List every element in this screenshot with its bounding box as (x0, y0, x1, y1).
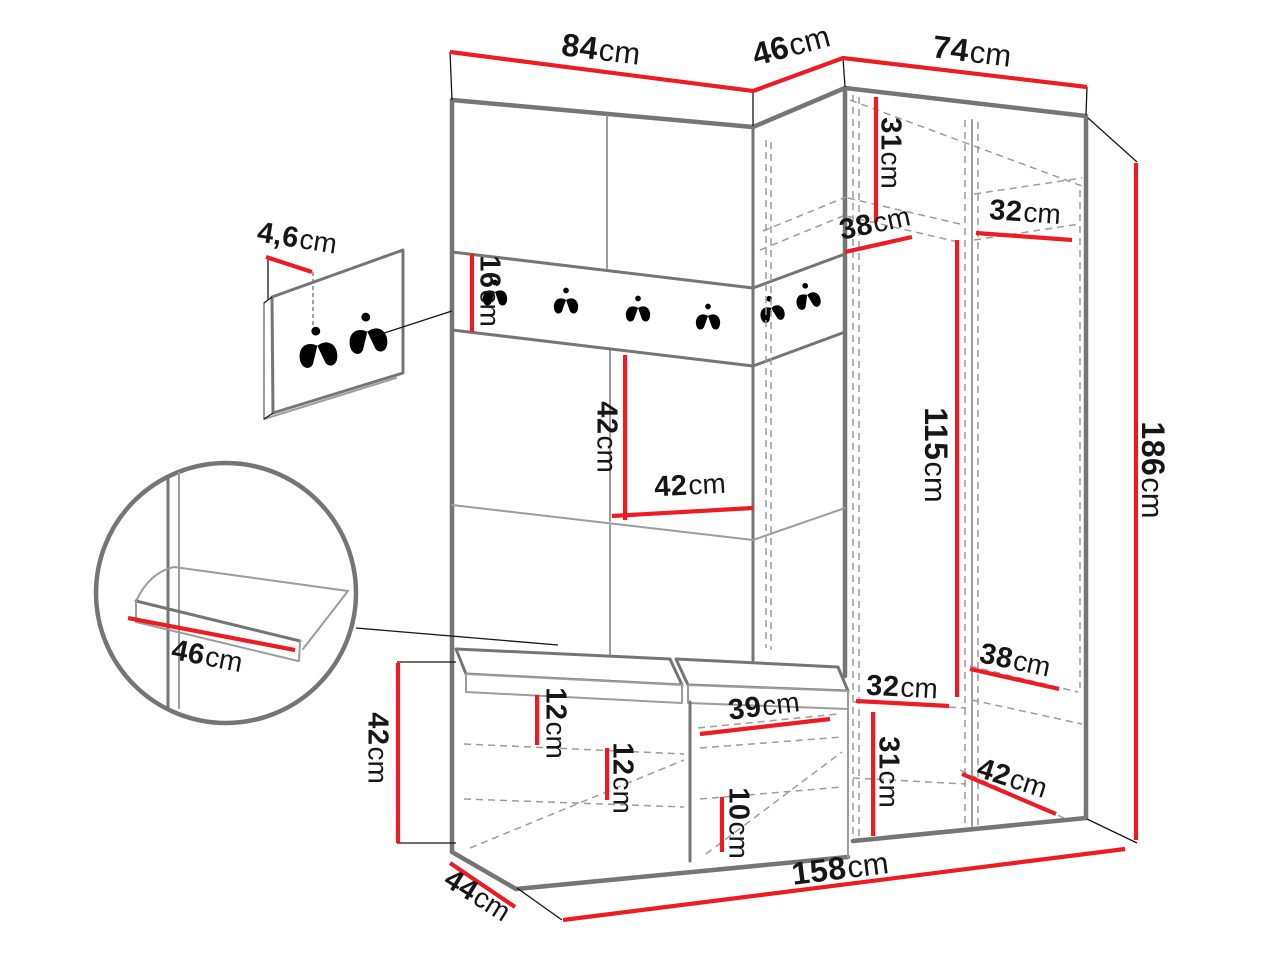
dim-middle-panel-height: 42cm (592, 401, 621, 473)
dim-value: 4,6 (255, 216, 301, 254)
floor-line (517, 888, 562, 920)
dim-shelf-spacing: 12cm (608, 742, 637, 814)
dim-value: 115 (918, 407, 954, 460)
dim-bottom-shelf-height: 10cm (724, 787, 753, 859)
dim-value: 42 (591, 401, 623, 434)
detail-leader-line (356, 628, 558, 645)
dim-value: 84 (560, 26, 601, 66)
dim-value: 12 (607, 742, 639, 775)
hook-rail (452, 252, 845, 540)
dim-value: 31 (873, 736, 905, 769)
dim-hanging-height: 115cm (920, 407, 952, 502)
dim-unit: cm (297, 223, 339, 259)
dim-unit: cm (1135, 477, 1170, 518)
dim-value: 31 (875, 117, 907, 150)
technical-drawing (0, 0, 1280, 960)
dim-hook-rail-height: 16cm (475, 255, 504, 327)
dim-unit: cm (968, 34, 1013, 74)
dim-value: 12 (540, 687, 572, 720)
furniture-dimension-diagram: 84cm 46cm 74cm 4,6cm 16cm 42cm 42cm 31cm… (0, 0, 1280, 960)
dim-unit: cm (1022, 196, 1061, 230)
dim-lower-section-height: 31cm (874, 736, 903, 808)
dim-lower-shelf-width: 32cm (865, 672, 938, 705)
dim-value: 186 (1135, 421, 1171, 476)
dim-unit: cm (363, 746, 394, 783)
dim-unit: cm (760, 686, 801, 721)
dim-unit: cm (541, 721, 572, 758)
dim-unit: cm (475, 289, 506, 326)
dim-value: 10 (723, 787, 755, 820)
dim-unit: cm (918, 461, 953, 502)
dim-unit: cm (876, 151, 907, 188)
dim-value: 46 (169, 634, 208, 672)
dim-top-left-width: 84cm (560, 28, 642, 69)
dim-value: 39 (726, 691, 763, 727)
left-panel (452, 116, 753, 654)
dim-value: 74 (931, 28, 972, 68)
dim-unit: cm (874, 770, 905, 807)
dim-value: 32 (988, 194, 1023, 228)
dim-unit: cm (900, 671, 939, 704)
dim-value: 158 (790, 849, 849, 891)
detail-hook-panel (264, 250, 452, 419)
dim-total-height: 186cm (1137, 421, 1169, 518)
dim-value: 16 (474, 255, 506, 288)
dim-upper-shelf-height: 31cm (876, 117, 905, 189)
dim-value: 38 (837, 208, 876, 246)
dim-value: 42 (362, 712, 394, 745)
dim-top-right-width: 74cm (931, 30, 1013, 71)
dim-value: 32 (865, 670, 900, 704)
dim-cushion-thickness: 12cm (541, 687, 570, 759)
dim-middle-panel-width: 42cm (653, 470, 726, 503)
dim-value: 42 (653, 470, 688, 504)
dim-unit: cm (592, 435, 623, 472)
dim-unit: cm (608, 776, 639, 813)
dim-upper-shelf-width: 32cm (988, 196, 1061, 230)
dim-bench-height: 42cm (363, 712, 392, 784)
dim-unit: cm (688, 468, 727, 501)
dim-unit: cm (845, 845, 890, 885)
shoe-bench (452, 649, 848, 889)
dim-unit: cm (724, 821, 755, 858)
dim-unit: cm (597, 32, 642, 72)
